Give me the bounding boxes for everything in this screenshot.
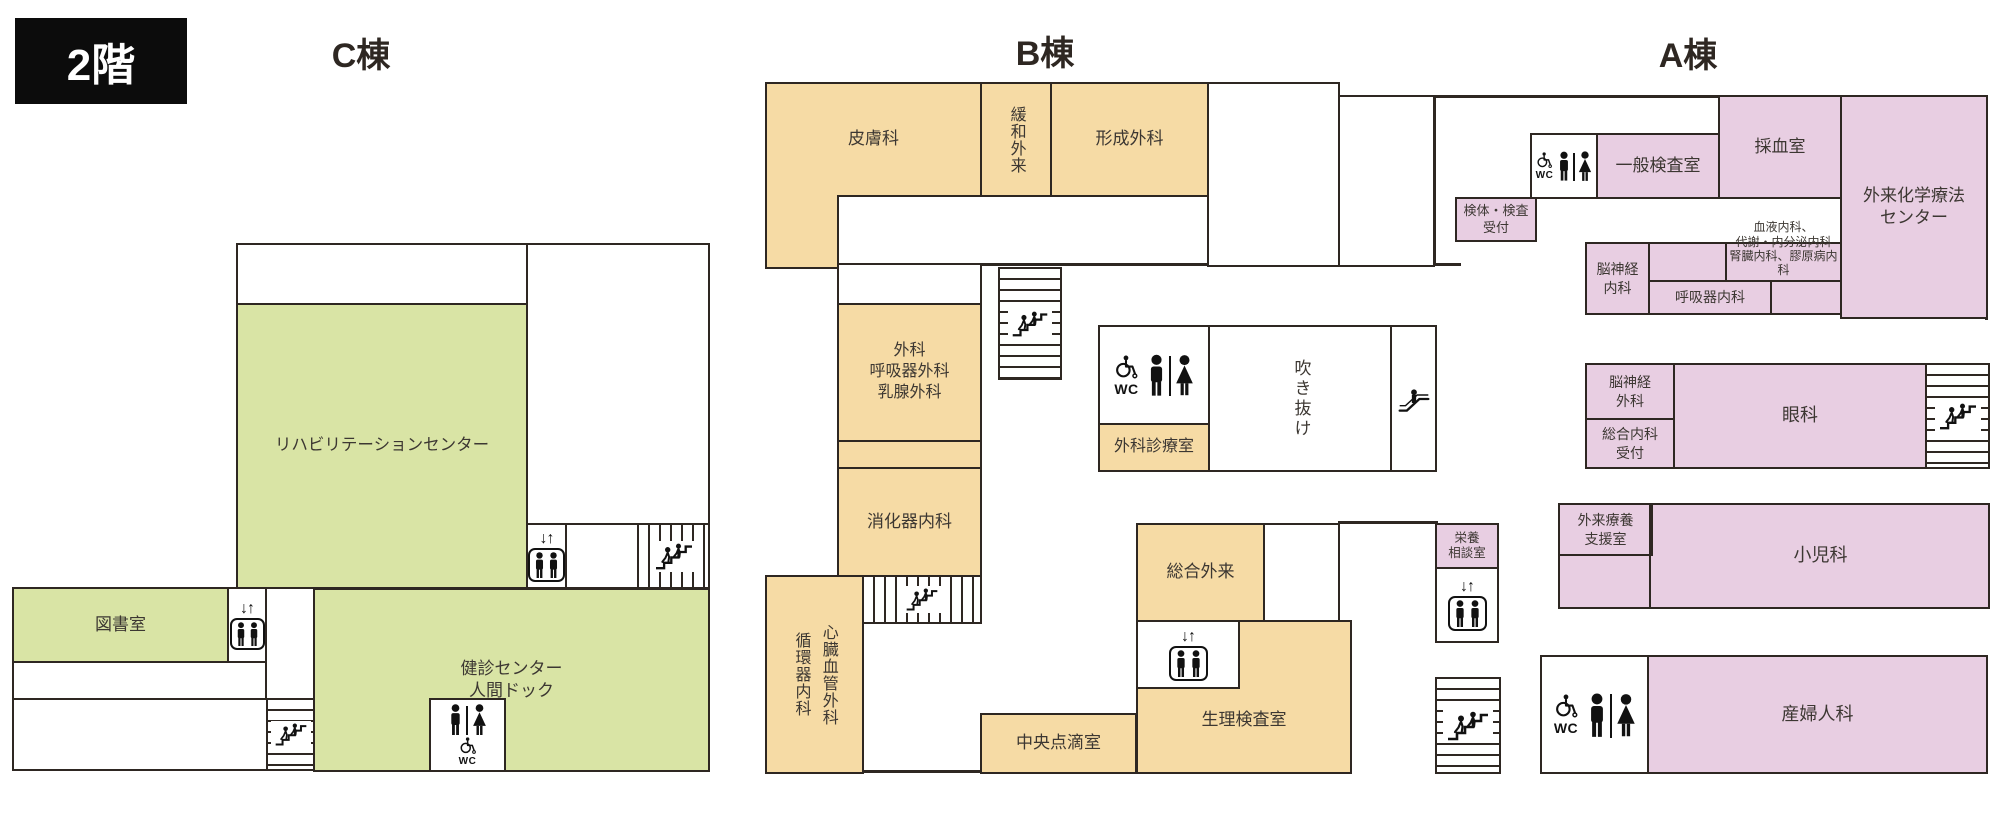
room-c-row-b [12,698,268,771]
wall-a-stub [1433,263,1461,266]
restroom-b: WC [1098,325,1210,425]
woman-icon [1616,692,1636,738]
stairs-b-lower [862,575,982,624]
room-a-unlabeled-2 [1770,280,1842,315]
room-central-iv: 中央点滴室 [980,713,1137,774]
stairs-icon [271,721,311,748]
hospital-floor-map: 2階 C棟 B棟 A棟 リハビリテーションセンター ↓↑ 図書室 ↓↑ [0,0,2000,840]
elevator-c-library: ↓↑ [227,587,267,663]
escalator-icon [1397,385,1431,413]
room-c-top-right-area [526,243,710,525]
room-a-unlabeled-1 [1648,242,1727,282]
room-neurosurgery: 脳神経 外科 [1585,363,1675,420]
wall-b-bottom [862,770,984,773]
room-b-notch [1263,523,1340,622]
wheelchair-icon [459,737,477,755]
room-b-northeast-2 [1338,95,1435,267]
stairs-b-central [998,267,1062,380]
floor-badge: 2階 [15,18,187,104]
building-title-a: A棟 [1608,28,1768,77]
woman-icon [1175,354,1194,396]
stairs-icon [1008,309,1052,339]
building-title-c: C棟 [281,28,441,77]
stairs-icon [651,541,697,572]
room-atrium: 吹き抜け [1208,325,1392,472]
stairs-c-lower [266,698,315,771]
room-hematology-metabolism: 血液内科、 代謝・内分泌内科 腎臓内科、膠原病内科 [1725,242,1842,282]
woman-icon [1578,151,1592,181]
room-ophthalmology: 眼科 [1673,363,1927,469]
room-b-small [837,440,982,469]
room-obstetrics-gynecology: 産婦人科 [1647,655,1988,774]
stairs-icon [1935,401,1981,432]
room-b-northeast-1 [1207,82,1340,267]
escalator-b [1390,325,1437,472]
elevator-icon: ↓↑ [1169,629,1208,681]
woman-icon [472,704,487,735]
room-general-lab: 一般検査室 [1596,133,1720,199]
man-icon [449,704,462,735]
room-dermatology-wing [765,195,839,269]
elevator-b: ↓↑ [1136,620,1240,689]
room-b-strip [837,263,982,305]
wheelchair-icon [1554,694,1579,719]
room-gastroenterology: 消化器内科 [837,467,982,577]
room-surgery-clinic: 外科診療室 [1098,423,1210,472]
stairs-a-east [1925,363,1990,469]
wall-b-south [1338,521,1438,524]
elevator-icon: ↓↑ [230,601,265,650]
room-health-checkup-center: 健診センター 人間ドック [313,588,710,772]
room-palliative-care: 緩和外来 [980,82,1052,197]
room-general-internal-reception: 総合内科 受付 [1585,418,1675,469]
wc-label: WC [1536,171,1554,181]
room-surgery-respiratory-breast: 外科 呼吸器外科 乳腺外科 [837,303,982,442]
stairs-a-west [1435,677,1501,774]
room-c-landing [565,523,639,589]
room-specimen-reception: 検体・検査 受付 [1455,197,1537,242]
room-plastic-surgery: 形成外科 [1050,82,1209,197]
wc-label: WC [459,757,477,767]
room-general-outpatient: 総合外来 [1136,523,1265,622]
man-icon [1558,151,1570,181]
man-icon [1588,692,1606,738]
wc-label: WC [1554,721,1578,735]
man-icon [1148,354,1165,396]
room-pediatrics-block: 外来療養 支援室 小児科 [1558,503,1990,609]
elevator-c-upper: ↓↑ [526,523,567,589]
wc-label: WC [1114,382,1138,396]
room-outpatient-chemotherapy: 外来化学療法 センター [1840,95,1988,319]
room-dermatology: 皮膚科 [765,82,982,197]
elevator-icon: ↓↑ [528,531,565,582]
stairs-c-upper [637,523,710,589]
room-pediatrics: 小児科 [1651,505,1990,607]
wheelchair-icon [1114,355,1139,380]
wheelchair-icon [1536,152,1553,169]
room-neurology: 脳神経 内科 [1585,242,1650,315]
room-outpatient-support: 外来療養 支援室 [1560,505,1653,556]
room-blood-collection: 採血室 [1718,95,1842,199]
restroom-a-north: WC [1530,133,1598,199]
room-library: 図書室 [12,587,229,663]
room-respiratory-medicine: 呼吸器内科 [1648,280,1772,315]
room-c-top-strip [236,243,528,305]
stairs-icon [1443,709,1493,743]
elevator-a: ↓↑ [1435,567,1499,643]
building-title-b: B棟 [965,26,1125,75]
room-cardiovascular: 心臓血管外科 循環器内科 [765,575,864,774]
stairs-icon [902,586,942,613]
room-c-row-a [12,661,267,700]
room-rehabilitation-center: リハビリテーションセンター [236,303,528,589]
room-nutrition-counseling: 栄養 相談室 [1435,523,1499,569]
restroom-a-south: WC [1540,655,1649,774]
elevator-icon: ↓↑ [1448,579,1487,631]
restroom-c: WC [429,698,506,772]
